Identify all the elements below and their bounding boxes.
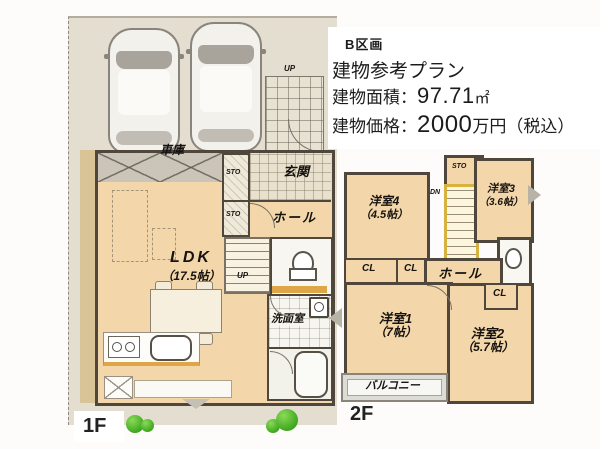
bush-icon [276, 409, 298, 431]
car-windshield [198, 45, 254, 64]
building-price-label: 建物価格： [332, 117, 417, 136]
furniture-sketch-sofa [112, 190, 148, 262]
building-area-unit: ㎡ [475, 90, 490, 107]
storage-1f-b [222, 200, 250, 237]
entrance-label: 玄関 [283, 161, 309, 180]
car-1-topview [108, 28, 180, 154]
balcony-label: バルコニー [341, 377, 444, 393]
building-price-note: 万円（税込） [472, 117, 574, 136]
building-price-value: 2000 [417, 111, 472, 138]
car-roof [200, 66, 252, 113]
furniture-sketch-tv [152, 228, 176, 260]
porch-up-label: UP [284, 64, 295, 73]
car-mirror-right [260, 49, 266, 54]
car-rear-window [198, 129, 254, 143]
washing-machine-icon [309, 297, 329, 318]
car-mirror-right [178, 54, 184, 59]
side-yard-strip [80, 150, 96, 403]
floor-hatch-box [104, 376, 133, 399]
section-name: B区画 [345, 34, 383, 53]
direction-arrow-right [528, 185, 541, 205]
floorplan-canvas: UP 車庫 玄関 STO STO ホール UP 洗面室 LDK （17.5帖） [0, 0, 600, 449]
stove-icon [108, 336, 140, 358]
toilet-tank-icon [289, 268, 317, 281]
shutter-x-left [98, 153, 160, 182]
plan-title: 建物参考プラン [332, 56, 465, 83]
gable-mark [182, 399, 210, 409]
toilet-icon-2f [505, 248, 522, 269]
storage-1f-a-label: STO [226, 169, 240, 176]
closet-b-label: CL [404, 263, 417, 274]
car-mirror-left [104, 54, 110, 59]
floor-2f-tag: 2F [350, 403, 373, 426]
dining-table-icon [150, 289, 222, 333]
direction-arrow-left [329, 308, 342, 328]
burner-icon [112, 342, 122, 352]
room2-size: （5.7帖） [447, 338, 528, 355]
room4-size: （4.5帖） [344, 206, 424, 222]
burner-icon [125, 342, 135, 352]
toilet-counter [272, 286, 327, 293]
car-2-topview [190, 22, 262, 152]
building-area-label: 建物面積： [332, 88, 417, 107]
floor-1f-tag: 1F [74, 411, 124, 442]
car-windshield [116, 51, 172, 69]
building-area-value: 97.71 [417, 83, 475, 108]
stairs-2f-dn-label: DN [430, 189, 440, 196]
storage-2f-label: STO [452, 163, 466, 170]
garage-label: 車庫 [160, 141, 184, 158]
stairs-1f-up-label: UP [237, 271, 248, 280]
car-roof [118, 70, 170, 115]
sink-icon [150, 335, 192, 361]
car-mirror-left [186, 49, 192, 54]
window-bench [134, 380, 232, 398]
bathtub-icon [294, 351, 328, 398]
hall-1f-label: ホール [272, 207, 317, 226]
storage-1f-b-label: STO [226, 211, 240, 218]
room3-size: （3.6帖） [474, 193, 528, 208]
building-price-line: 建物価格：2000万円（税込） [332, 111, 574, 139]
closet-a-label: CL [362, 263, 375, 274]
building-area-line: 建物面積：97.71㎡ [332, 83, 490, 109]
hall-2f-label: ホール [424, 263, 497, 282]
storage-1f-a [222, 153, 250, 202]
closet-c-label: CL [493, 288, 506, 299]
bush-icon [141, 419, 154, 432]
room1-size: （7帖） [344, 323, 447, 340]
